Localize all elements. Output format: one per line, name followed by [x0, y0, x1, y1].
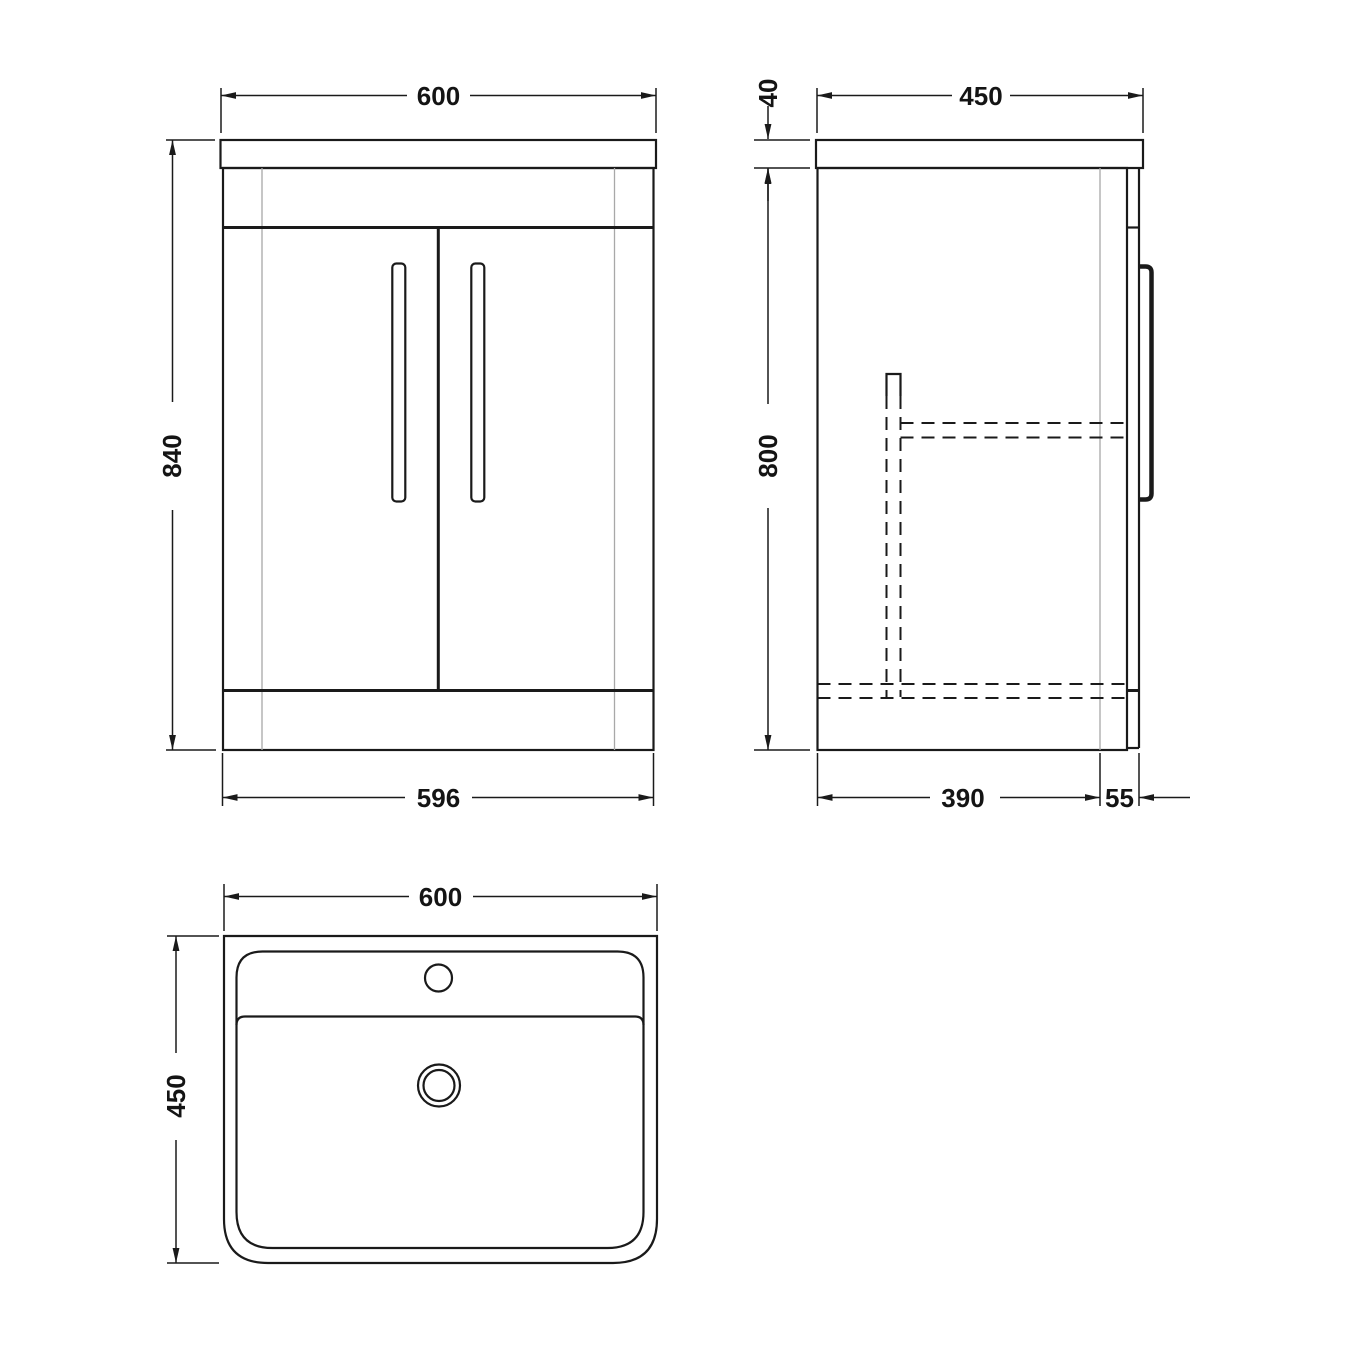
- dim-label-plan-width: 600: [419, 882, 462, 912]
- plan-view: 600 450: [161, 882, 657, 1263]
- dim-side-depth-top: 450: [817, 81, 1143, 133]
- dim-label-side-counter-thickness: 40: [753, 79, 783, 108]
- dim-side-body-height: 800: [753, 168, 810, 750]
- technical-drawing-page: 600 840 596: [0, 0, 1346, 1346]
- side-countertop: [816, 140, 1143, 168]
- vanity-technical-drawing: 600 840 596: [0, 0, 1346, 1346]
- dim-side-counter-thickness: 40: [753, 79, 810, 201]
- dim-label-side-depth-bottom: 390: [941, 783, 984, 813]
- dim-label-side-depth-top: 450: [959, 81, 1002, 111]
- dim-label-front-height: 840: [157, 434, 187, 477]
- dim-front-width-top: 600: [221, 81, 656, 133]
- side-waste-pipe-hidden-lines: [887, 374, 901, 697]
- front-left-door-handle: [392, 264, 405, 502]
- front-right-door-handle: [471, 264, 484, 502]
- dim-side-front-offset: 55: [1105, 753, 1190, 813]
- side-door-panel: [1127, 168, 1139, 748]
- side-view: 450 40 800 390 55: [753, 79, 1190, 813]
- side-door-handle: [1139, 267, 1152, 500]
- dim-label-side-body-height: 800: [753, 434, 783, 477]
- dim-side-depth-bottom: 390: [818, 753, 1101, 813]
- plan-drain-hole: [418, 1065, 460, 1107]
- dim-label-front-width-bottom: 596: [417, 783, 460, 813]
- dim-label-side-front-offset: 55: [1105, 783, 1134, 813]
- dim-label-plan-depth: 450: [161, 1074, 191, 1117]
- plan-basin-shelf-line: [237, 1017, 644, 1026]
- plan-basin-outline: [237, 952, 644, 1249]
- front-countertop: [221, 140, 657, 168]
- dim-plan-depth: 450: [161, 936, 219, 1263]
- dim-plan-width: 600: [224, 882, 657, 931]
- plan-tap-hole: [425, 965, 452, 992]
- side-carcass: [818, 168, 1128, 750]
- plan-countertop-outline: [224, 936, 657, 1263]
- side-shelf-hidden-lines: [901, 423, 1128, 438]
- side-bottom-hidden-lines: [818, 684, 1128, 698]
- dim-front-height: 840: [157, 140, 216, 750]
- dim-front-width-bottom: 596: [223, 753, 654, 813]
- dim-label-front-width-top: 600: [417, 81, 460, 111]
- front-view: 600 840 596: [157, 81, 656, 813]
